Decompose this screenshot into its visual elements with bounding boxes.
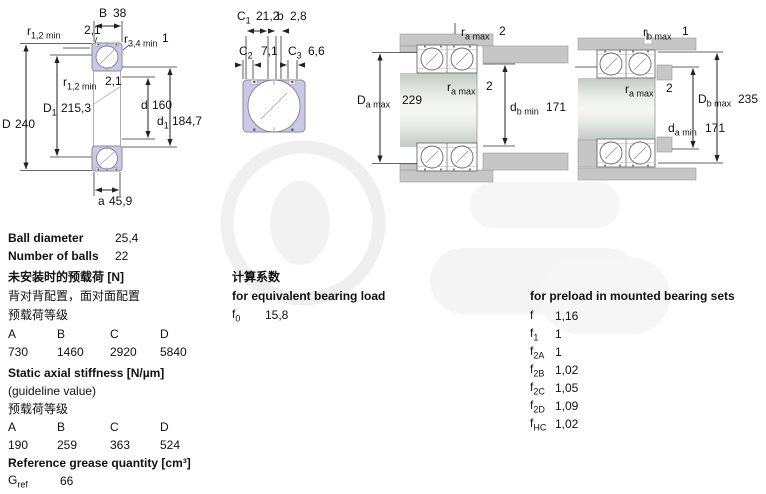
dim-value-da-min: 171: [705, 122, 725, 135]
dim-sub: b max: [647, 31, 672, 41]
dim-base: f: [530, 308, 533, 322]
dim-sub: a max: [465, 31, 490, 41]
dim-sub: 1,2 min: [31, 30, 61, 40]
dim-label-r12-min-mid: r1,2 min: [63, 76, 97, 91]
dim-value-D: 240: [15, 118, 35, 131]
dim-sub: 2C: [533, 386, 545, 396]
preload-unmounted-subtitle: 背对背配置，面对面配置: [8, 289, 140, 303]
dim-base: D: [698, 92, 707, 106]
factor-value-f2B: 1,02: [555, 363, 578, 377]
gref-value: 66: [60, 474, 73, 488]
dim-value-D1: 215,3: [61, 102, 91, 115]
preload-val-C: 2920: [110, 345, 137, 359]
dim-sub: 2: [248, 50, 253, 60]
dim-label-ra-max: ra max: [625, 83, 654, 98]
stiffness-col-C: C: [110, 420, 119, 434]
dim-sub: HC: [533, 422, 546, 432]
calc-factors-title: 计算系数: [232, 270, 280, 284]
dim-sub: 1: [52, 107, 57, 117]
dim-label-d: d: [141, 99, 148, 112]
dim-value-r12-min-mid: 2,1: [105, 75, 122, 88]
dim-base: D: [357, 93, 366, 107]
dim-sub: 1: [246, 15, 251, 25]
dim-value-ra-max-mid: 2: [486, 80, 493, 93]
bearing-pair-bottom: [417, 143, 477, 171]
dim-sub: a min: [675, 127, 697, 137]
dim-value-Da-max: 229: [402, 94, 422, 107]
dim-label-C2: C2: [239, 45, 253, 60]
stiffness-val-D: 524: [160, 438, 180, 452]
dim-sub: 2A: [533, 350, 544, 360]
dim-value-ra-max: 2: [666, 82, 673, 95]
dim-label-da-min: da min: [668, 122, 697, 137]
dim-sub: 3,4 min: [128, 38, 158, 48]
stiffness-col-D: D: [160, 420, 169, 434]
dim-value-b: 2,8: [290, 10, 307, 23]
dim-value-C3: 6,6: [308, 45, 325, 58]
factor-value-f1: 1: [555, 327, 562, 341]
bearing-section-top: [92, 43, 122, 71]
dim-base: d: [141, 98, 148, 112]
factor-value-f2A: 1: [555, 345, 562, 359]
dim-sub: b min: [517, 106, 539, 116]
dim-label-db-min: db min: [510, 101, 539, 116]
dim-value-d1: 184,7: [172, 115, 202, 128]
factor-label-f2A: f2A: [530, 345, 544, 360]
dim-sub: 3: [297, 50, 302, 60]
preload-col-B: B: [57, 327, 65, 341]
bearing-pair-bottom: [597, 139, 655, 167]
dim-sub: a max: [451, 86, 476, 96]
dim-value-r12-min-top: 2,1: [84, 24, 101, 37]
dim-sub: 0: [235, 313, 240, 323]
dim-base: B: [99, 6, 107, 20]
dim-base: G: [8, 473, 17, 487]
bearing-section-bottom: [92, 146, 122, 171]
stiffness-subtitle: (guideline value): [8, 384, 96, 398]
dim-base: C: [288, 44, 297, 58]
dim-sub: b max: [707, 98, 732, 108]
dim-label-r12-min-top: r1,2 min: [27, 25, 61, 40]
stiffness-class-label: 预载荷等级: [8, 402, 68, 416]
preload-col-D: D: [160, 327, 169, 341]
gref-label: Gref: [8, 474, 28, 489]
dim-sub: 2D: [533, 404, 545, 414]
dim-base: D: [2, 117, 11, 131]
dim-sub: 1: [533, 332, 538, 342]
dim-base: a: [98, 194, 105, 208]
stiffness-col-A: A: [8, 420, 16, 434]
dim-sub: 2B: [533, 368, 544, 378]
factor-label-f1: f1: [530, 327, 538, 342]
stiffness-val-C: 363: [110, 438, 130, 452]
factor-value-f2D: 1,09: [555, 399, 578, 413]
dim-value-C1: 21,2: [256, 10, 279, 23]
stiffness-title: Static axial stiffness [N/µm]: [8, 366, 164, 380]
preload-unmounted-title: 未安装时的预载荷 [N]: [8, 270, 124, 284]
dim-label-ra-max-mid: ra max: [447, 81, 476, 96]
dim-value-a: 45,9: [109, 195, 132, 208]
dim-value-ra-max-top: 2: [499, 25, 506, 38]
preload-val-D: 5840: [160, 345, 187, 359]
preload-factors-title: for preload in mounted bearing sets: [530, 289, 735, 303]
factor-label-f: f: [530, 309, 533, 324]
dim-label-r34-min: r3,4 min: [124, 33, 158, 48]
dim-label-Db-max: Db max: [698, 93, 731, 108]
dim-label-ra-max-top: ra max: [461, 26, 490, 41]
stiffness-val-B: 259: [57, 438, 77, 452]
dim-base: C: [237, 9, 246, 23]
dim-label-d1: d1: [157, 115, 169, 130]
preload-class-label: 预载荷等级: [8, 308, 68, 322]
dim-sub: a max: [366, 99, 391, 109]
dim-value-db-min: 171: [546, 101, 566, 114]
dim-base: C: [239, 44, 248, 58]
preload-col-C: C: [110, 327, 119, 341]
factor-label-f2D: f2D: [530, 399, 545, 414]
f0-label: f0: [232, 308, 240, 323]
dim-label-D1: D1: [43, 102, 57, 117]
dim-sub: 1: [164, 120, 169, 130]
dim-base: b: [277, 9, 284, 23]
dim-base: d: [510, 100, 517, 114]
ball-diameter-label: Ball diameter: [8, 231, 83, 245]
dim-value-r34-min: 1: [162, 32, 169, 45]
number-of-balls-label: Number of balls: [8, 249, 99, 263]
factor-value-fHC: 1,02: [555, 417, 578, 431]
dim-label-D: D: [2, 118, 11, 131]
preload-col-A: A: [8, 327, 16, 341]
factor-label-f2B: f2B: [530, 363, 544, 378]
dim-value-d: 160: [152, 99, 172, 112]
factor-label-f2C: f2C: [530, 381, 545, 396]
bearing-section-large: [243, 80, 305, 132]
dim-value-C2: 7,1: [261, 45, 278, 58]
dim-value-Db-max: 235: [738, 93, 758, 106]
dim-value-rb-max: 1: [682, 25, 689, 38]
dim-label-C1: C1: [237, 10, 251, 25]
bearing-pair-top: [417, 45, 477, 73]
grease-title: Reference grease quantity [cm³]: [8, 456, 191, 470]
dim-label-C3: C3: [288, 45, 302, 60]
dim-label-a: a: [98, 195, 105, 208]
bearing-datasheet-page: B 38 r1,2 min 2,1 r3,4 min 1 r1,2 min 2,…: [0, 0, 766, 494]
factor-label-fHC: fHC: [530, 417, 546, 432]
ball-diameter-value: 25,4: [115, 231, 138, 245]
factor-value-f2C: 1,05: [555, 381, 578, 395]
stiffness-col-B: B: [57, 420, 65, 434]
dim-base: D: [43, 101, 52, 115]
stiffness-val-A: 190: [8, 438, 28, 452]
dim-sub: ref: [17, 479, 28, 489]
preload-val-A: 730: [8, 345, 28, 359]
calc-factors-subtitle: for equivalent bearing load: [232, 289, 385, 303]
bearing-pair-top: [597, 50, 655, 78]
number-of-balls-value: 22: [115, 249, 128, 263]
dim-value-B: 38: [113, 7, 126, 20]
dim-base: d: [668, 121, 675, 135]
dim-label-rb-max: rb max: [643, 26, 672, 41]
preload-val-B: 1460: [57, 345, 84, 359]
dim-label-b: b: [277, 10, 284, 23]
factor-value-f: 1,16: [555, 309, 578, 323]
dim-label-Da-max: Da max: [357, 94, 390, 109]
dim-sub: a max: [629, 88, 654, 98]
f0-value: 15,8: [265, 308, 288, 322]
dim-sub: 1,2 min: [67, 81, 97, 91]
dim-base: d: [157, 114, 164, 128]
dim-label-B: B: [99, 7, 107, 20]
